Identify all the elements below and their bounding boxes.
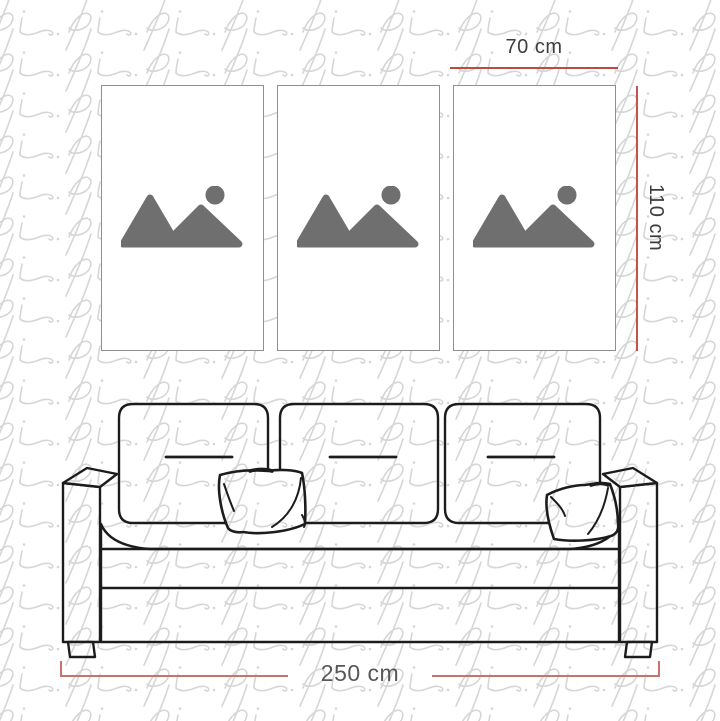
frame-height-label: 110 cm — [644, 184, 667, 251]
image-placeholder-icon — [473, 186, 597, 250]
sofa-seat-base — [101, 524, 619, 642]
sofa-width-left-tick — [60, 661, 62, 677]
sofa-width-label: 250 cm — [288, 660, 432, 687]
art-frame-left — [101, 85, 264, 351]
sofa-left-foot — [68, 642, 95, 657]
product-mockup-canvas: 70 cm 110 cm 250 cm — [0, 0, 720, 721]
frame-width-label: 70 cm — [450, 36, 618, 59]
art-frame-center — [277, 85, 440, 351]
sofa-right-foot — [625, 642, 652, 657]
throw-pillow-left — [219, 470, 305, 534]
sofa-width-line-right-segment — [432, 675, 660, 677]
frame-height-dimension-line — [636, 86, 638, 351]
sofa-right-arm-front — [620, 483, 657, 642]
sofa-left-arm-top — [63, 468, 117, 487]
frame-width-dimension-line — [450, 67, 618, 69]
throw-pillow-right — [546, 483, 618, 540]
image-placeholder-icon — [121, 186, 245, 250]
sofa-left-arm-front — [63, 483, 100, 642]
art-frame-right — [453, 85, 616, 351]
sofa-width-line-left-segment — [60, 675, 288, 677]
image-placeholder-icon — [297, 186, 421, 250]
sofa-width-right-tick — [658, 661, 660, 677]
